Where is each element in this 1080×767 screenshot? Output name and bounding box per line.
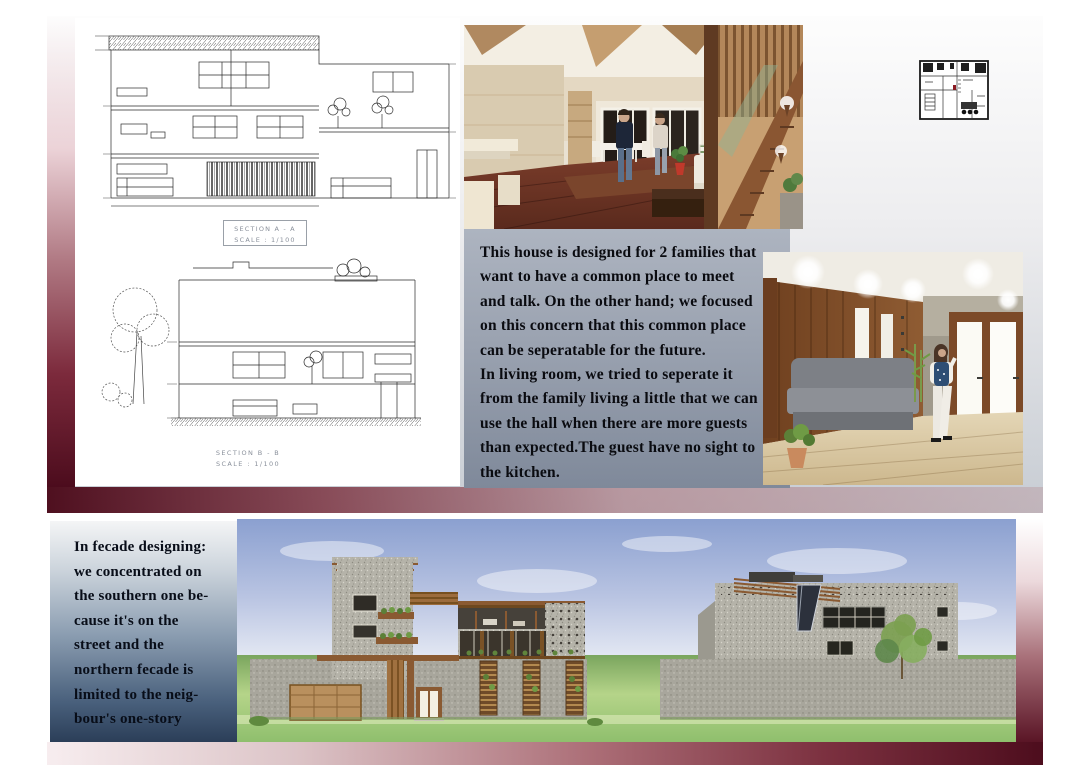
description-panel: This house is designed for 2 families th… — [464, 229, 790, 488]
entry-door — [416, 687, 442, 719]
living-room-render — [464, 25, 803, 229]
floor-plan-thumbnail — [917, 56, 991, 122]
entrance-hall-render — [763, 252, 1023, 485]
section-a-scale: SCALE : 1/100 — [224, 235, 306, 246]
section-b-scale: SCALE : 1/100 — [163, 459, 333, 470]
section-a-title-box: SECTION A - A SCALE : 1/100 — [223, 220, 307, 246]
left-door-edge — [763, 278, 777, 438]
upper-panel: SECTION A - A SCALE : 1/100 — [47, 16, 1043, 513]
section-a-drawing — [81, 28, 456, 218]
description-text: This house is designed for 2 families th… — [480, 241, 780, 485]
section-b-title: SECTION B - B — [163, 448, 333, 459]
coffee-table — [652, 189, 712, 217]
entry-slats — [387, 660, 404, 719]
facade-note-text: In fecade designing: we concentrated on … — [74, 535, 232, 732]
street-wall-right — [660, 659, 1016, 719]
maroon-right-strip — [1016, 519, 1043, 742]
facade-elevation-render — [237, 519, 1016, 742]
facade-note-panel: In fecade designing: we concentrated on … — [50, 521, 240, 742]
lower-panel: In fecade designing: we concentrated on … — [50, 519, 1043, 742]
presentation-board: SECTION A - A SCALE : 1/100 — [0, 0, 1080, 767]
garage-door — [290, 685, 361, 720]
maroon-bottom-band — [47, 742, 1043, 765]
stair-area — [704, 25, 803, 229]
louver-openings — [480, 661, 583, 715]
maroon-left-strip — [47, 16, 75, 487]
section-b-drawing — [83, 254, 423, 446]
section-b-caption: SECTION B - B SCALE : 1/100 — [163, 448, 333, 470]
gray-sofa — [787, 358, 919, 430]
section-drawings-area: SECTION A - A SCALE : 1/100 — [75, 18, 460, 486]
section-a-title: SECTION A - A — [224, 224, 306, 235]
